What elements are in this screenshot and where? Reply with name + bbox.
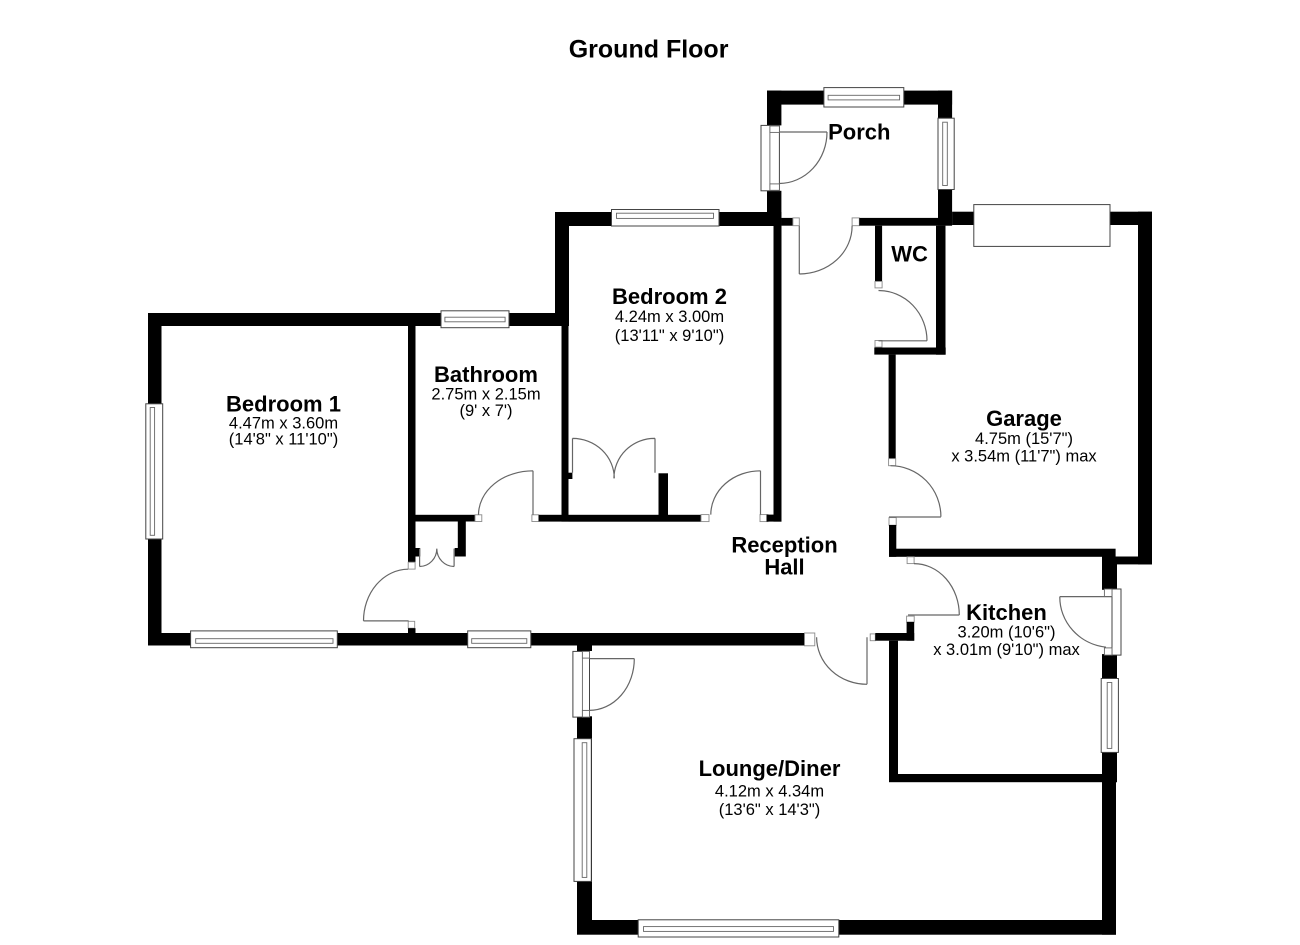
svg-text:WC: WC — [891, 242, 928, 267]
svg-text:3.20m (10'6"): 3.20m (10'6") — [958, 624, 1056, 642]
svg-text:Garage: Garage — [986, 406, 1062, 431]
svg-text:Bedroom 1: Bedroom 1 — [226, 392, 341, 417]
svg-text:2.75m x 2.15m: 2.75m x 2.15m — [431, 385, 540, 403]
svg-text:4.12m x 4.34m: 4.12m x 4.34m — [715, 783, 824, 801]
svg-text:Porch: Porch — [828, 120, 890, 145]
svg-text:Ground Floor: Ground Floor — [569, 36, 729, 64]
svg-text:4.75m (15'7"): 4.75m (15'7") — [975, 430, 1073, 448]
svg-text:(9' x 7'): (9' x 7') — [459, 402, 512, 420]
svg-text:(13'11" x 9'10"): (13'11" x 9'10") — [615, 327, 724, 345]
svg-text:(14'8" x 11'10"): (14'8" x 11'10") — [229, 431, 338, 449]
svg-text:Hall: Hall — [764, 555, 804, 580]
svg-text:Bathroom: Bathroom — [434, 362, 538, 387]
svg-text:Bedroom 2: Bedroom 2 — [612, 284, 727, 309]
svg-text:Lounge/Diner: Lounge/Diner — [699, 756, 841, 781]
svg-text:Kitchen: Kitchen — [966, 600, 1047, 625]
svg-text:4.24m x 3.00m: 4.24m x 3.00m — [615, 308, 724, 326]
svg-text:(13'6" x 14'3"): (13'6" x 14'3") — [719, 801, 820, 819]
svg-text:x 3.01m (9'10") max: x 3.01m (9'10") max — [933, 641, 1080, 659]
svg-text:x 3.54m (11'7") max: x 3.54m (11'7") max — [951, 448, 1097, 466]
